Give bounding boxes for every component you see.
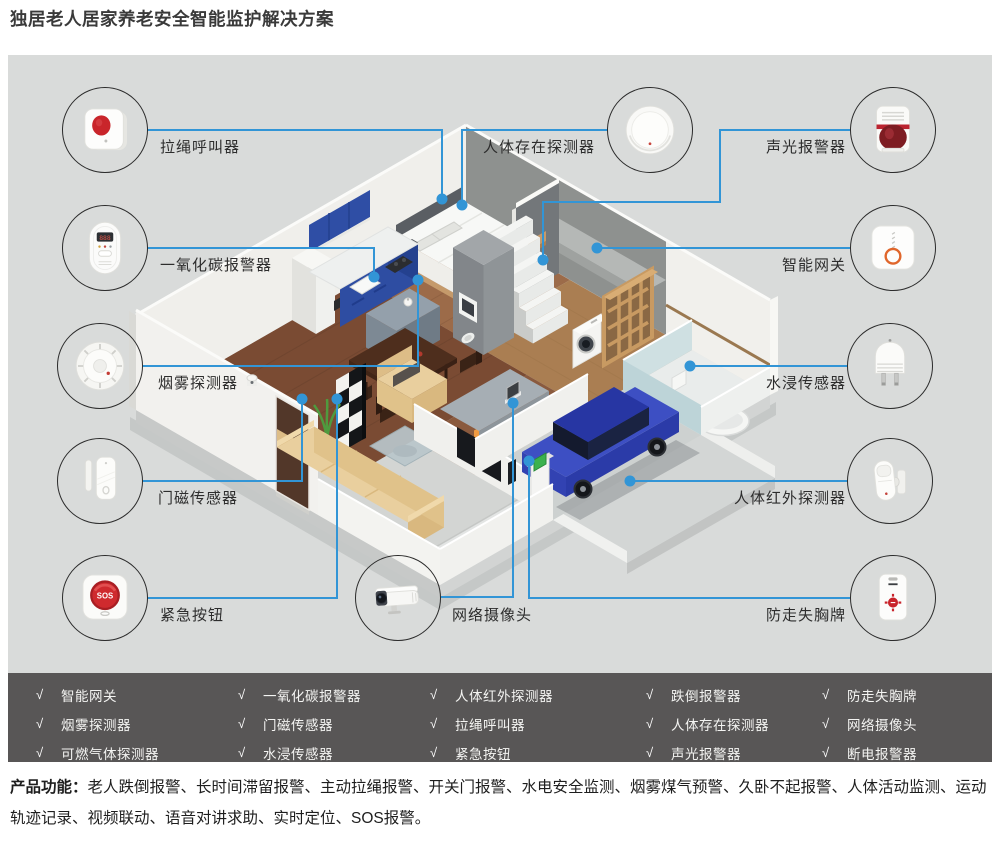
sound-light-alarm-icon	[860, 97, 926, 163]
poster: 独居老人居家养老安全智能监护解决方案	[0, 0, 1000, 843]
checklist-item: √智能网关	[36, 680, 159, 709]
checklist-item-label: 一氧化碳报警器	[263, 685, 361, 705]
connector-dot-pull-cord-caller	[437, 194, 448, 205]
smart-gateway-icon	[860, 215, 926, 281]
checklist-item: √门磁传感器	[238, 709, 361, 738]
device-photo-sound-light-alarm	[850, 87, 936, 173]
connector-door-magnet-sensor	[143, 399, 302, 481]
checklist-item-label: 人体红外探测器	[455, 685, 553, 705]
check-icon: √	[430, 687, 444, 702]
device-label-door-magnet-sensor: 门磁传感器	[158, 490, 238, 508]
checklist-column-3: √人体红外探测器√拉绳呼叫器√紧急按钮	[430, 680, 553, 767]
check-icon: √	[36, 745, 50, 760]
product-features-label: 产品功能：	[10, 779, 88, 796]
checklist-item-label: 水浸传感器	[263, 743, 333, 763]
product-features-text: 老人跌倒报警、长时间滞留报警、主动拉绳报警、开关门报警、水电安全监测、烟雾煤气预…	[10, 779, 987, 827]
checklist-item-label: 人体存在探测器	[671, 714, 769, 734]
check-icon: √	[822, 745, 836, 760]
device-label-presence-detector: 人体存在探测器	[483, 139, 595, 157]
device-label-smart-gateway: 智能网关	[782, 257, 846, 275]
connector-dot-sound-light-alarm	[538, 255, 549, 266]
device-photo-pir-detector	[847, 438, 933, 524]
presence-detector-icon	[617, 97, 683, 163]
checklist-bar: √智能网关√烟雾探测器√可燃气体探测器√一氧化碳报警器√门磁传感器√水浸传感器√…	[8, 673, 992, 762]
device-label-pull-cord-caller: 拉绳呼叫器	[160, 139, 240, 157]
svg-text:888: 888	[99, 234, 111, 242]
check-icon: √	[822, 687, 836, 702]
connector-dot-door-magnet-sensor	[297, 394, 308, 405]
connector-network-camera	[441, 403, 513, 597]
check-icon: √	[238, 745, 252, 760]
device-label-co-alarm: 一氧化碳报警器	[160, 257, 272, 275]
device-label-anti-lost-badge: 防走失胸牌	[766, 607, 846, 625]
check-icon: √	[430, 745, 444, 760]
checklist-item-label: 门磁传感器	[263, 714, 333, 734]
device-photo-pull-cord-caller	[62, 87, 148, 173]
checklist-item: √人体红外探测器	[430, 680, 553, 709]
pull-cord-caller-icon	[72, 97, 138, 163]
device-photo-network-camera	[355, 555, 441, 641]
checklist-item: √水浸传感器	[238, 738, 361, 767]
co-alarm-icon: 888	[72, 215, 138, 281]
diagram-panel: 拉绳呼叫器888一氧化碳报警器烟雾探测器门磁传感器SOS紧急按钮人体存在探测器声…	[8, 55, 992, 673]
checklist-item-label: 紧急按钮	[455, 743, 511, 763]
checklist-item: √烟雾探测器	[36, 709, 159, 738]
checklist-item: √跌倒报警器	[646, 680, 769, 709]
connector-dot-smoke-detector	[413, 275, 424, 286]
device-label-pir-detector: 人体红外探测器	[734, 490, 846, 508]
check-icon: √	[646, 716, 660, 731]
checklist-item-label: 网络摄像头	[847, 714, 917, 734]
checklist-item: √网络摄像头	[822, 709, 917, 738]
checklist-item: √断电报警器	[822, 738, 917, 767]
connector-dot-emergency-button	[332, 394, 343, 405]
check-icon: √	[36, 716, 50, 731]
checklist-column-4: √跌倒报警器√人体存在探测器√声光报警器	[646, 680, 769, 767]
check-icon: √	[646, 745, 660, 760]
connector-dot-co-alarm	[369, 272, 380, 283]
check-icon: √	[238, 716, 252, 731]
checklist-item-label: 断电报警器	[847, 743, 917, 763]
connector-dot-pir-detector	[625, 476, 636, 487]
device-photo-door-magnet-sensor	[57, 438, 143, 524]
device-photo-smoke-detector	[57, 323, 143, 409]
checklist-column-5: √防走失胸牌√网络摄像头√断电报警器	[822, 680, 917, 767]
checklist-column-2: √一氧化碳报警器√门磁传感器√水浸传感器	[238, 680, 361, 767]
checklist-item-label: 声光报警器	[671, 743, 741, 763]
pir-detector-icon	[857, 448, 923, 514]
smoke-detector-icon	[67, 333, 133, 399]
device-photo-anti-lost-badge	[850, 555, 936, 641]
checklist-item-label: 烟雾探测器	[61, 714, 131, 734]
checklist-item: √人体存在探测器	[646, 709, 769, 738]
device-label-emergency-button: 紧急按钮	[160, 607, 224, 625]
device-label-sound-light-alarm: 声光报警器	[766, 139, 846, 157]
device-photo-presence-detector	[607, 87, 693, 173]
door-sensor-icon	[67, 448, 133, 514]
device-photo-smart-gateway	[850, 205, 936, 291]
device-photo-co-alarm: 888	[62, 205, 148, 291]
device-photo-water-leak-sensor	[847, 323, 933, 409]
check-icon: √	[646, 687, 660, 702]
connector-dot-smart-gateway	[592, 243, 603, 254]
checklist-item-label: 智能网关	[61, 685, 117, 705]
checklist-item: √拉绳呼叫器	[430, 709, 553, 738]
check-icon: √	[822, 716, 836, 731]
emergency-button-icon: SOS	[72, 565, 138, 631]
svg-text:SOS: SOS	[97, 591, 113, 600]
check-icon: √	[36, 687, 50, 702]
network-camera-icon	[365, 565, 431, 631]
connector-dot-presence-detector	[457, 200, 468, 211]
check-icon: √	[238, 687, 252, 702]
checklist-column-1: √智能网关√烟雾探测器√可燃气体探测器	[36, 680, 159, 767]
water-sensor-icon	[857, 333, 923, 399]
connector-dot-anti-lost-badge	[524, 456, 535, 467]
checklist-item-label: 拉绳呼叫器	[455, 714, 525, 734]
page-title: 独居老人居家养老安全智能监护解决方案	[10, 6, 334, 31]
device-label-smoke-detector: 烟雾探测器	[158, 375, 238, 393]
checklist-item: √一氧化碳报警器	[238, 680, 361, 709]
device-label-water-leak-sensor: 水浸传感器	[766, 375, 846, 393]
connector-dot-network-camera	[508, 398, 519, 409]
checklist-item: √可燃气体探测器	[36, 738, 159, 767]
checklist-item-label: 防走失胸牌	[847, 685, 917, 705]
checklist-item-label: 可燃气体探测器	[61, 743, 159, 763]
anti-lost-badge-icon	[860, 565, 926, 631]
checklist-item: √紧急按钮	[430, 738, 553, 767]
checklist-item: √防走失胸牌	[822, 680, 917, 709]
device-photo-emergency-button: SOS	[62, 555, 148, 641]
connector-dot-water-leak-sensor	[685, 361, 696, 372]
device-label-network-camera: 网络摄像头	[452, 607, 532, 625]
product-features: 产品功能：老人跌倒报警、长时间滞留报警、主动拉绳报警、开关门报警、水电安全监测、…	[10, 772, 992, 834]
check-icon: √	[430, 716, 444, 731]
connector-smoke-detector	[143, 280, 418, 366]
checklist-item-label: 跌倒报警器	[671, 685, 741, 705]
checklist-item: √声光报警器	[646, 738, 769, 767]
